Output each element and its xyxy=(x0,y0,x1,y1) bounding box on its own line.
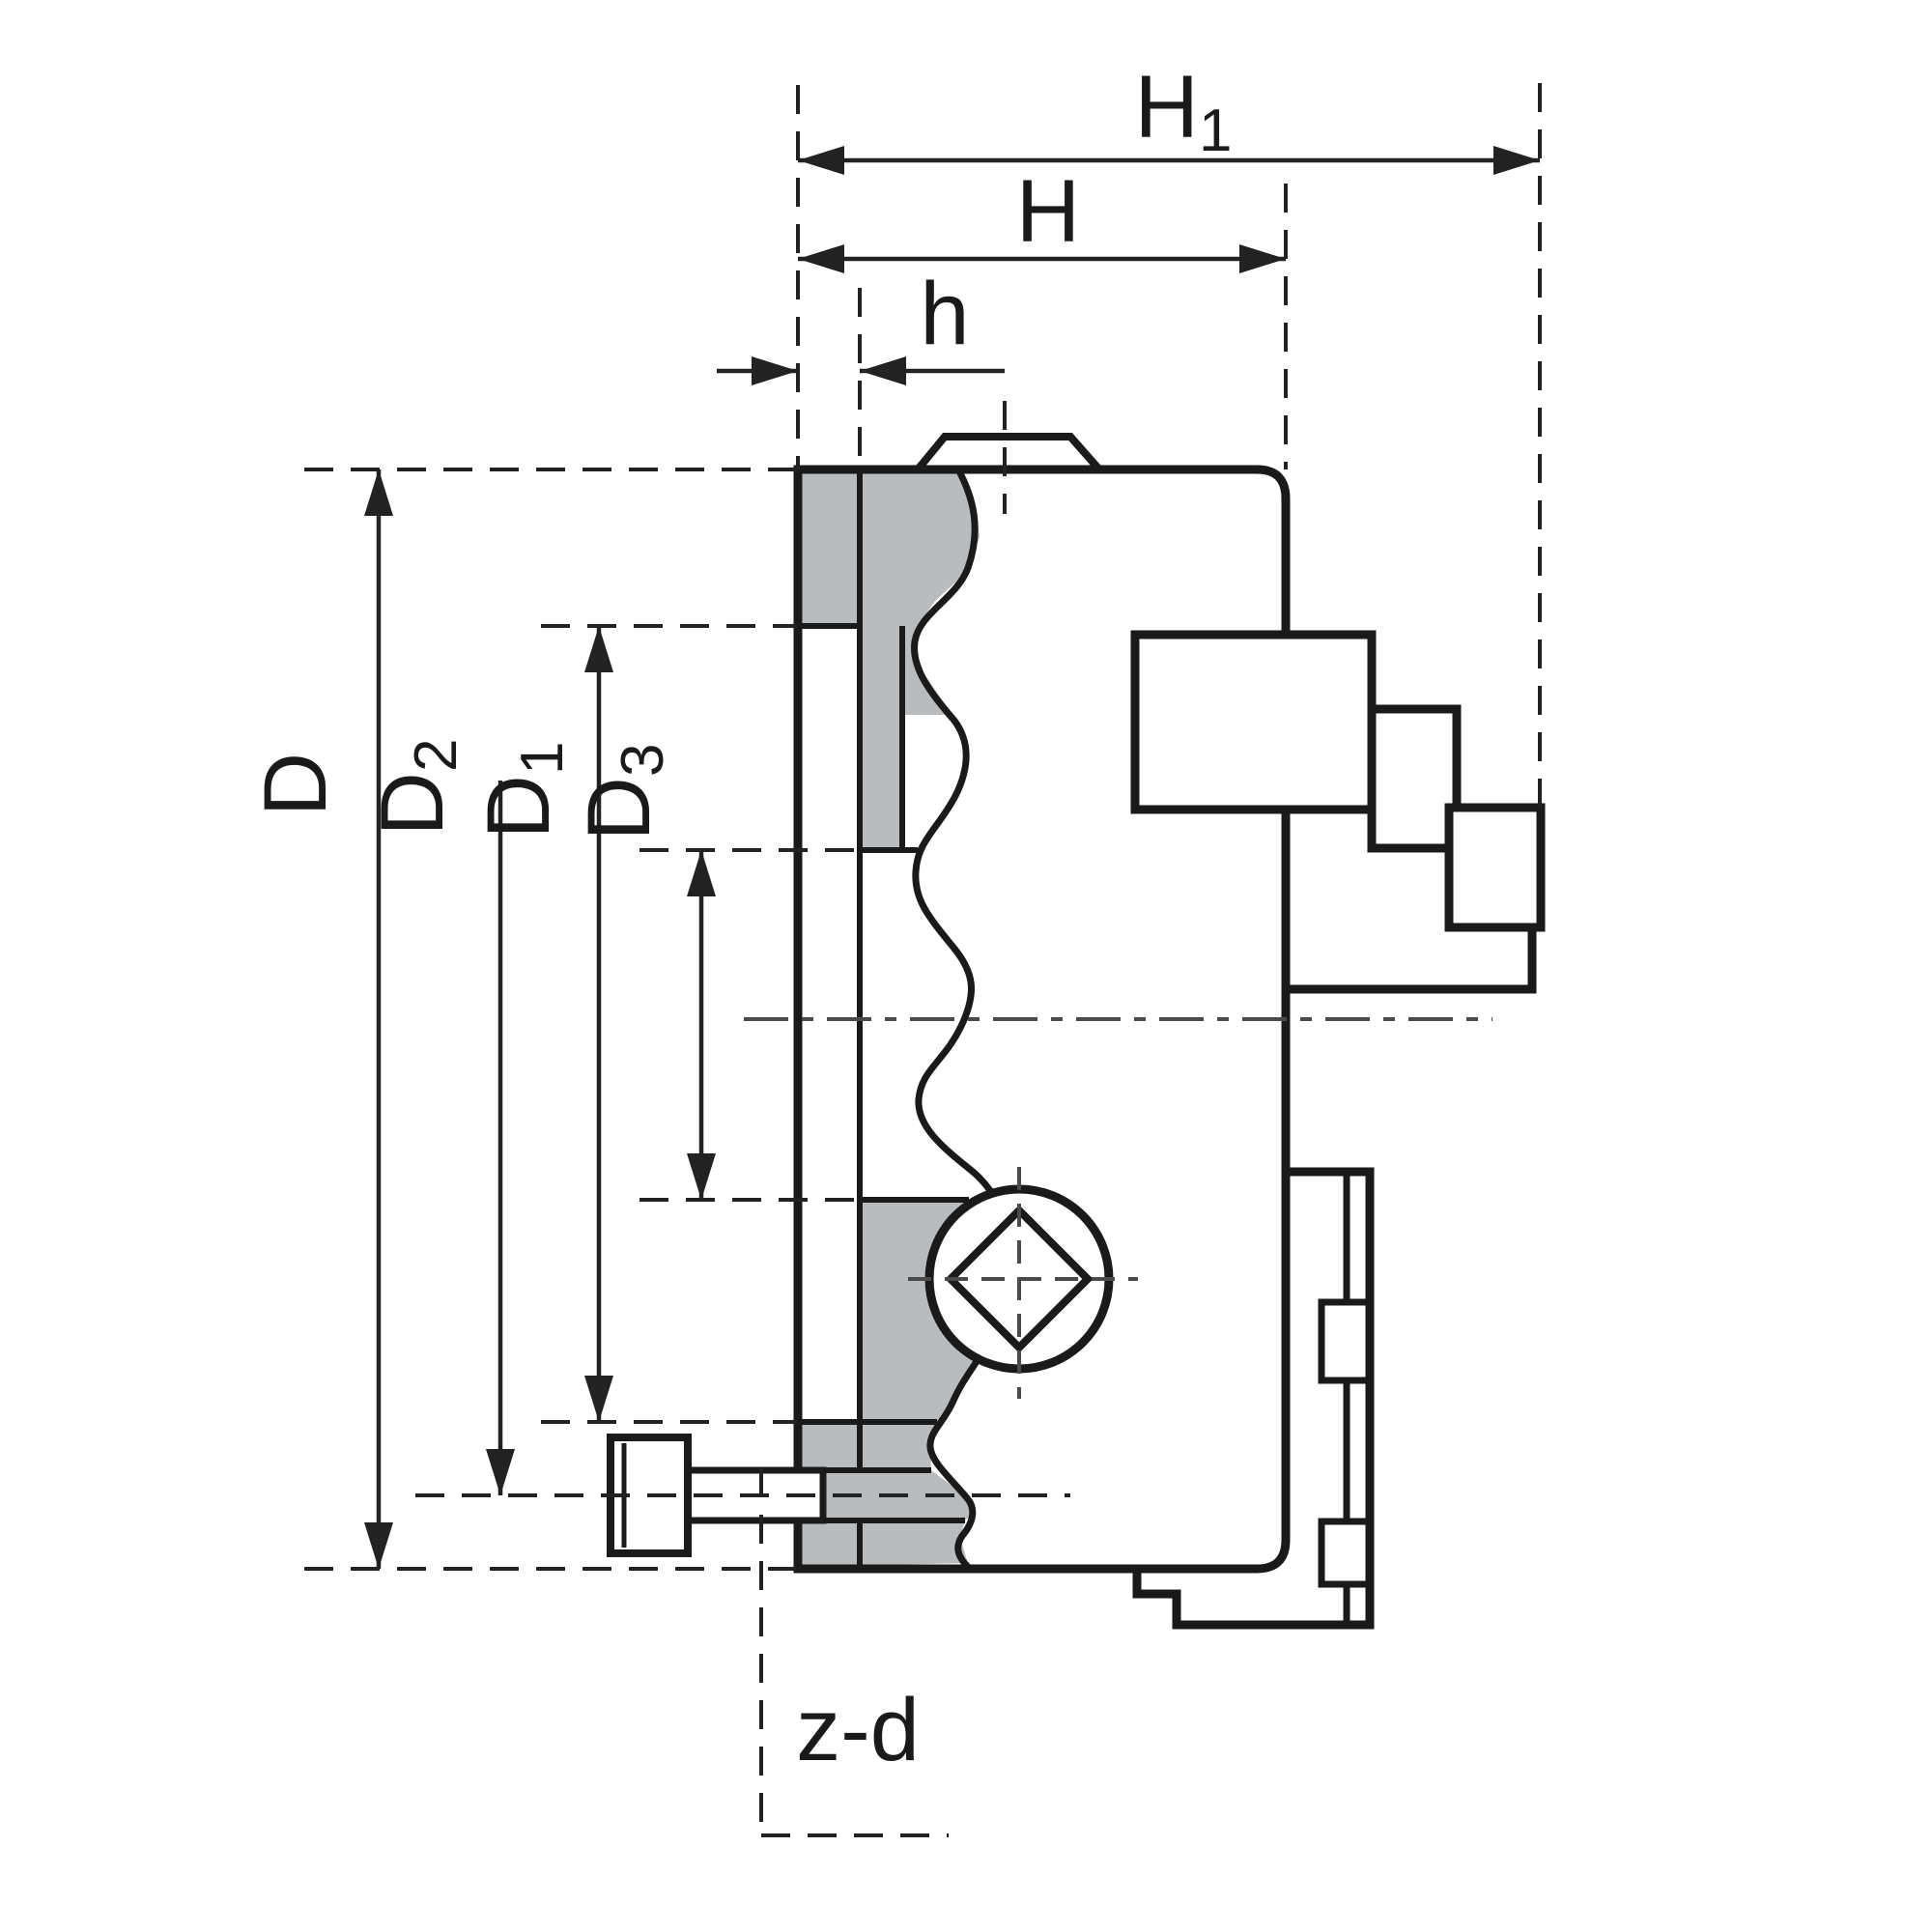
label-D: D xyxy=(246,753,345,816)
arrow-D3-top xyxy=(687,850,716,896)
arrow-H1-left xyxy=(798,146,844,175)
label-H: H xyxy=(1016,162,1080,261)
label-H1: H1 xyxy=(1135,58,1233,164)
arrow-D1-bottom xyxy=(584,1376,613,1422)
top-jaw-base-edge xyxy=(1286,927,1532,989)
arrow-D-bottom xyxy=(364,1522,393,1569)
label-h: h xyxy=(920,265,969,363)
arrow-h-left xyxy=(752,356,798,385)
top-jaw-step-1 xyxy=(1135,635,1372,810)
section-backplate-bottom-lower xyxy=(798,1520,968,1567)
arrow-h-right xyxy=(860,356,906,385)
arrow-D-top xyxy=(364,469,393,516)
chuck-side-section-canvas: H1 H h D D2 D1 D3 z-d xyxy=(0,0,1932,1932)
label-D3: D3 xyxy=(570,744,676,841)
arrow-D3-bottom xyxy=(687,1153,716,1200)
arrow-H-left xyxy=(798,244,844,273)
section-backplate-top xyxy=(798,469,980,626)
label-zd: z-d xyxy=(796,1681,920,1779)
chuck-technical-drawing-page: H1 H h D D2 D1 D3 z-d xyxy=(0,0,1932,1932)
bottom-jaw-backing xyxy=(1137,1172,1370,1625)
arrow-D2-bottom xyxy=(486,1449,515,1495)
arrow-H1-right xyxy=(1493,146,1540,175)
section-backplate-bottom-upper xyxy=(798,1422,937,1470)
key-pinion-boss xyxy=(918,437,1099,469)
top-jaw xyxy=(1135,635,1541,989)
top-jaw-step-3 xyxy=(1449,808,1541,927)
label-D1: D1 xyxy=(469,742,576,839)
top-jaw-step-2 xyxy=(1372,709,1457,848)
arrow-D1-top xyxy=(584,626,613,672)
arrow-H-right xyxy=(1239,244,1286,273)
